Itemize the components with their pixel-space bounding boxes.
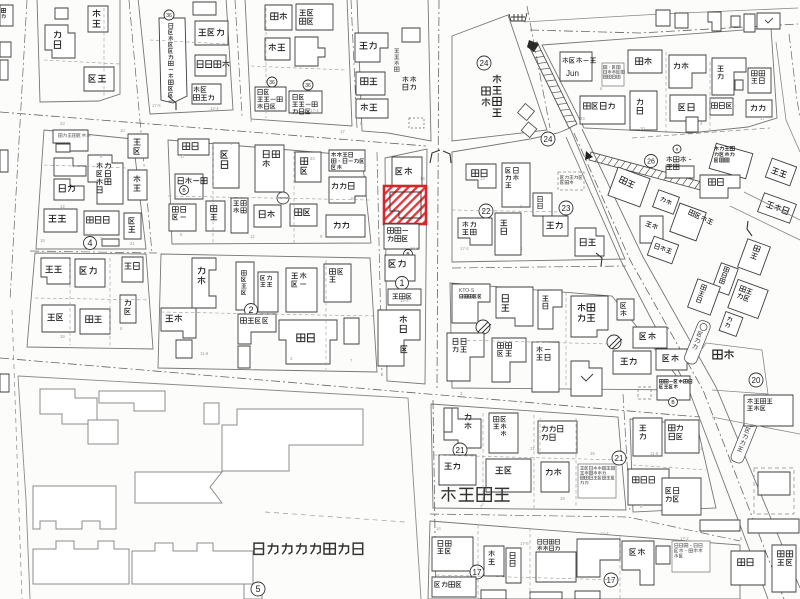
svg-text:17: 17 [760, 116, 765, 121]
svg-text:10: 10 [120, 128, 125, 133]
svg-text:36: 36 [166, 13, 172, 19]
svg-text:23: 23 [580, 116, 585, 121]
svg-text:24: 24 [480, 59, 489, 68]
svg-text:14: 14 [420, 176, 425, 181]
svg-text:23: 23 [310, 156, 315, 161]
svg-text:12-4: 12-4 [400, 298, 409, 303]
svg-text:17-2: 17-2 [460, 246, 469, 251]
svg-text:12-4: 12-4 [600, 531, 609, 536]
svg-text:24: 24 [544, 135, 553, 144]
svg-text:20: 20 [752, 376, 761, 385]
svg-text:21: 21 [615, 454, 624, 463]
svg-text:5: 5 [255, 584, 260, 594]
svg-text:36: 36 [305, 83, 311, 89]
svg-text:17-6: 17-6 [410, 246, 419, 251]
svg-text:22: 22 [482, 207, 491, 216]
svg-text:21: 21 [130, 241, 135, 246]
svg-text:17-6: 17-6 [520, 541, 529, 546]
svg-text:23: 23 [562, 204, 571, 213]
svg-text:12: 12 [60, 204, 65, 209]
svg-text:10: 10 [640, 126, 645, 131]
svg-text:26: 26 [647, 159, 655, 166]
svg-text:17-2: 17-2 [310, 108, 319, 113]
svg-text:23: 23 [60, 121, 65, 126]
svg-text:36: 36 [269, 80, 275, 86]
svg-text:12-4: 12-4 [210, 106, 219, 111]
svg-text:KTO-S: KTO-S [459, 288, 475, 294]
svg-text:12: 12 [250, 234, 255, 239]
svg-text:11-6: 11-6 [200, 351, 209, 356]
svg-text:11-6: 11-6 [650, 451, 659, 456]
svg-text:19: 19 [60, 334, 65, 339]
svg-text:17-2: 17-2 [680, 536, 689, 541]
svg-text:19: 19 [560, 496, 565, 501]
svg-text:15: 15 [40, 238, 45, 243]
svg-text:14: 14 [436, 526, 441, 531]
svg-text:21: 21 [530, 446, 535, 451]
svg-text:15: 15 [590, 451, 595, 456]
svg-text:Jun: Jun [566, 69, 579, 78]
svg-text:17-6: 17-6 [152, 103, 161, 108]
svg-text:12: 12 [480, 176, 485, 181]
svg-text:17: 17 [340, 129, 345, 134]
svg-text:17: 17 [473, 568, 482, 577]
svg-text:21: 21 [456, 446, 465, 455]
svg-text:4: 4 [87, 238, 92, 248]
svg-text:B: B [676, 146, 679, 151]
svg-text:17: 17 [607, 576, 616, 585]
svg-text:17: 17 [180, 154, 185, 159]
svg-text:10: 10 [350, 196, 355, 201]
svg-text:1: 1 [399, 278, 404, 288]
